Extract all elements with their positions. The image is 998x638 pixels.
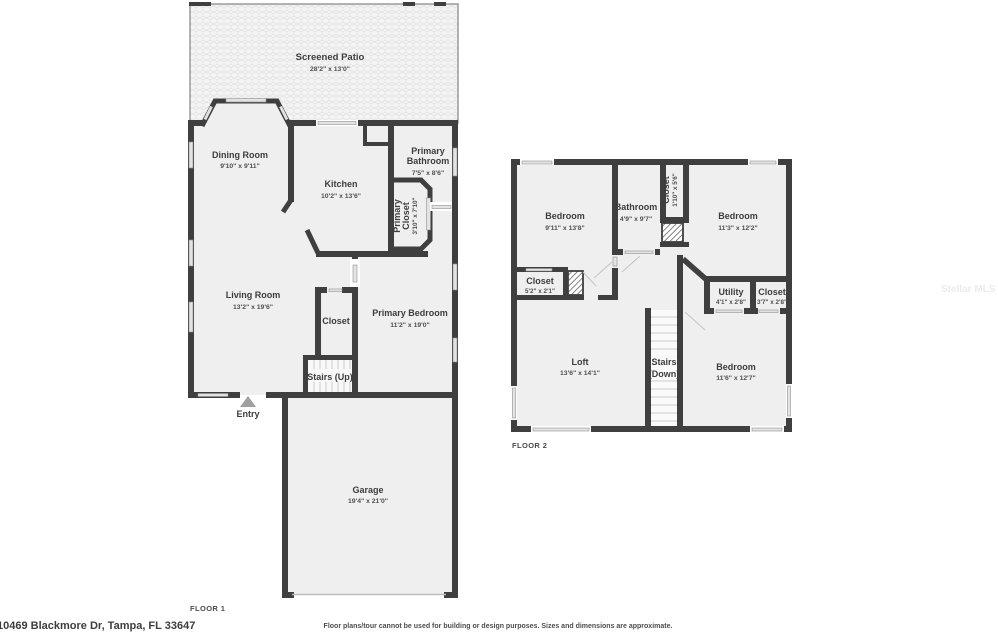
room-label-patio: Screened Patio bbox=[296, 52, 365, 63]
chase-hatch-2 bbox=[568, 271, 583, 295]
room-dims-bedroom-tl: 9'11" x 13'8" bbox=[545, 225, 585, 232]
room-label-loft: Loft bbox=[572, 357, 589, 367]
room-label-entry: Entry bbox=[236, 409, 259, 419]
room-label-primary-closet-2: Closet bbox=[401, 202, 411, 230]
room-label-primary-bath-2: Bathroom bbox=[407, 156, 450, 166]
room-dims-bathroom2: 4'9" x 9'7" bbox=[620, 216, 652, 223]
room-dims-primary-bath: 7'5" x 8'6" bbox=[412, 170, 444, 177]
room-dims-primary-bedroom: 11'2" x 19'0" bbox=[390, 322, 430, 329]
room-dims-closet-right: 3'7" x 2'8" bbox=[757, 299, 787, 306]
room-label-living: Living Room bbox=[226, 290, 281, 300]
room-label-primary-bedroom: Primary Bedroom bbox=[372, 308, 448, 318]
room-dims-utility: 4'1" x 2'8" bbox=[716, 299, 746, 306]
room-label-bathroom2: Bathroom bbox=[615, 202, 658, 212]
room-label-bedroom-b: Bedroom bbox=[716, 362, 756, 372]
floor1-plan: Screened Patio 28'2" x 13'0" Dining Room… bbox=[188, 2, 458, 613]
room-dims-bedroom-tr: 11'3" x 12'2" bbox=[718, 225, 758, 232]
room-label-primary-bath-1: Primary bbox=[411, 146, 445, 156]
room-label-dining: Dining Room bbox=[212, 150, 268, 160]
room-dims-loft: 13'6" x 14'1" bbox=[560, 370, 600, 377]
room-label-stairs-down-2: (Down) bbox=[649, 369, 680, 379]
room-label-closet-small: Closet bbox=[661, 176, 671, 204]
room-label-kitchen: Kitchen bbox=[324, 179, 357, 189]
floor2-plan: Bedroom 9'11" x 13'8" Bathroom 4'9" x 9'… bbox=[511, 159, 792, 450]
stairs-down-treads bbox=[651, 310, 677, 426]
watermark: Stellar MLS bbox=[941, 284, 996, 295]
chase-hatch-1 bbox=[662, 223, 683, 242]
room-label-bedroom-tl: Bedroom bbox=[545, 211, 585, 221]
room-label-closet-left: Closet bbox=[526, 276, 554, 286]
room-dims-kitchen: 10'2" x 13'6" bbox=[321, 193, 361, 200]
address-text: 10469 Blackmore Dr, Tampa, FL 33647 bbox=[0, 620, 195, 632]
entry-arrow-icon bbox=[240, 396, 256, 407]
room-label-closet-right: Closet bbox=[758, 287, 786, 297]
floor1-label: FLOOR 1 bbox=[190, 604, 225, 613]
room-label-bedroom-tr: Bedroom bbox=[718, 211, 758, 221]
disclaimer-text: Floor plans/tour cannot be used for buil… bbox=[324, 623, 673, 630]
room-dims-patio: 28'2" x 13'0" bbox=[310, 66, 350, 73]
room-dims-living: 13'2" x 19'6" bbox=[233, 304, 273, 311]
room-dims-closet-left: 5'2" x 2'1" bbox=[525, 288, 555, 295]
room-dims-dining: 9'10" x 9'11" bbox=[220, 163, 260, 170]
floorplan-canvas: Screened Patio 28'2" x 13'0" Dining Room… bbox=[0, 0, 998, 633]
room-dims-garage: 19'4" x 21'0" bbox=[348, 498, 388, 505]
room-dims-primary-closet: 3'10" x 7'10" bbox=[412, 197, 419, 234]
room-label-utility: Utility bbox=[718, 287, 743, 297]
room-label-garage: Garage bbox=[352, 485, 383, 495]
room-label-stairs-up: Stairs (Up) bbox=[307, 372, 353, 382]
room-label-stairs-down-1: Stairs bbox=[651, 357, 676, 367]
floorplan-page: { "footer": { "address": "10469 Blackmor… bbox=[0, 0, 998, 633]
room-dims-bedroom-b: 11'6" x 12'7" bbox=[716, 375, 756, 382]
room-label-closet1: Closet bbox=[322, 316, 350, 326]
floor2-label: FLOOR 2 bbox=[512, 441, 547, 450]
room-dims-closet-small: 1'10" x 5'6" bbox=[672, 173, 679, 206]
